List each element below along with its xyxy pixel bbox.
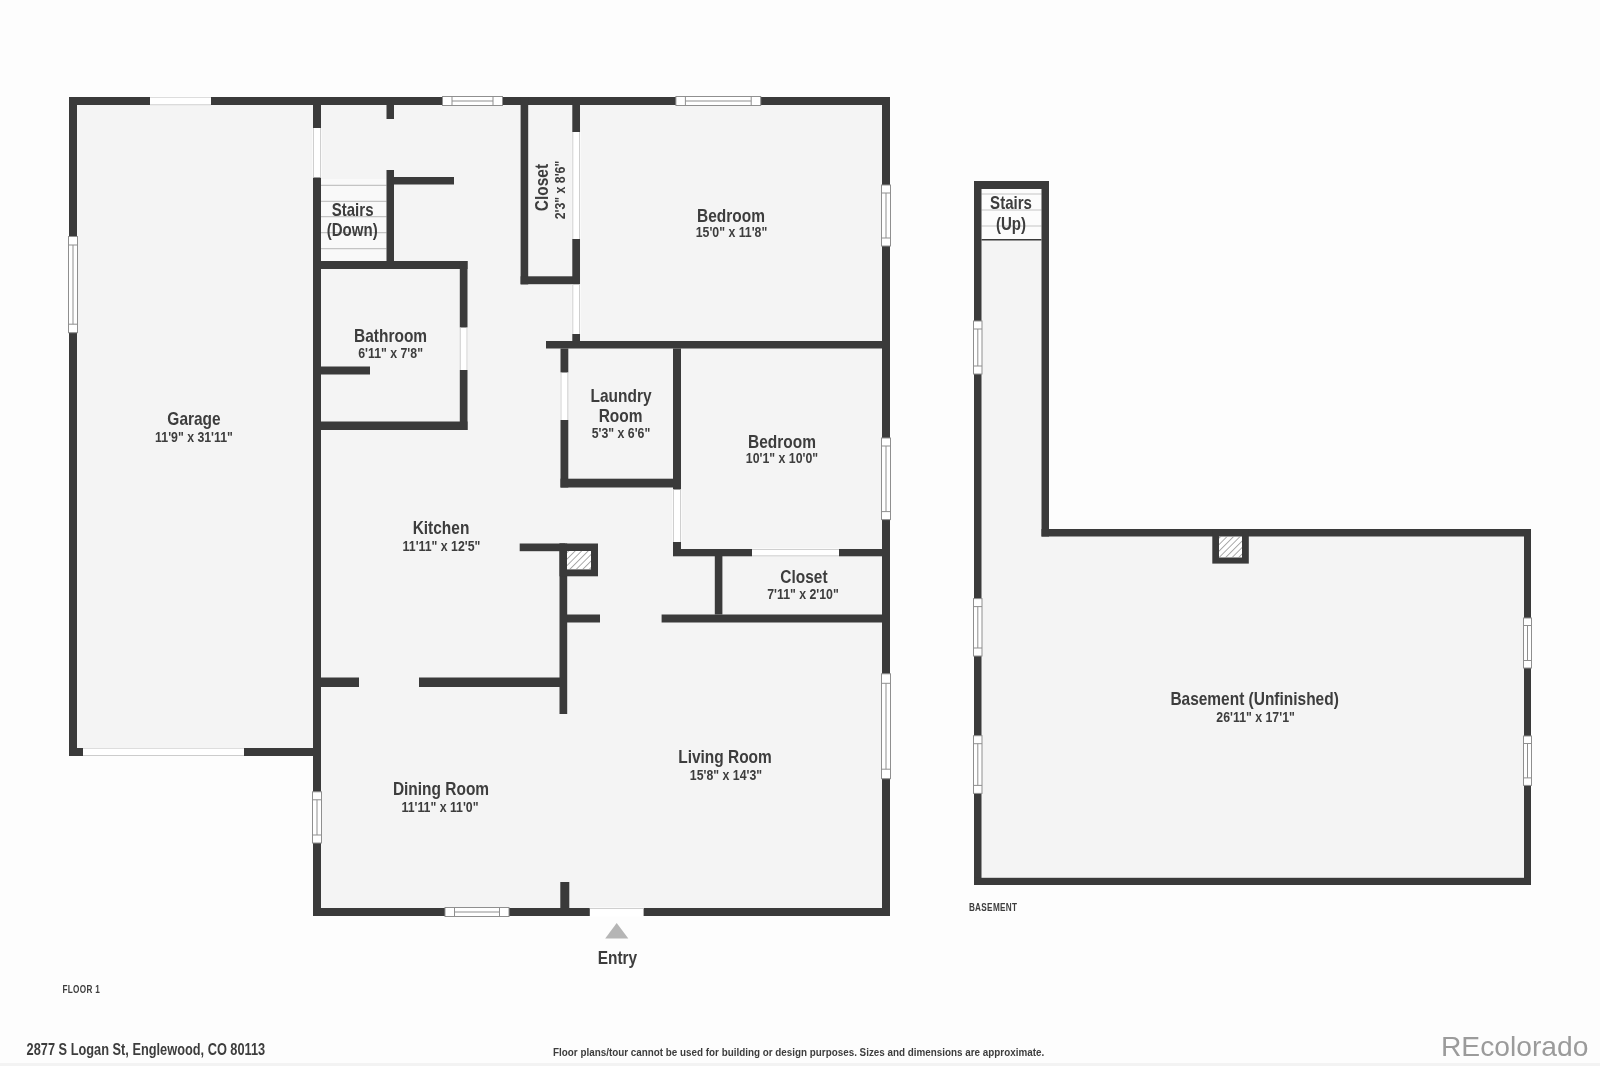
svg-text:Kitchen: Kitchen [413,517,470,537]
svg-text:Closet: Closet [780,567,828,587]
svg-text:15'0" x 11'8": 15'0" x 11'8" [696,224,768,240]
svg-text:Entry: Entry [598,948,638,968]
svg-text:Bedroom: Bedroom [697,205,765,225]
svg-text:Bathroom: Bathroom [354,325,427,345]
svg-text:11'9" x 31'11": 11'9" x 31'11" [155,429,233,445]
svg-text:REcolorado: REcolorado [1441,1029,1588,1061]
svg-text:(Down): (Down) [327,220,378,239]
svg-text:Garage: Garage [167,408,220,428]
svg-text:(Up): (Up) [996,214,1026,233]
svg-text:Floor plans/tour cannot be use: Floor plans/tour cannot be used for buil… [553,1047,1044,1058]
svg-text:Laundry: Laundry [591,386,653,406]
svg-text:2877 S Logan St, Englewood, CO: 2877 S Logan St, Englewood, CO 80113 [27,1040,266,1058]
svg-text:Bedroom: Bedroom [748,431,816,451]
svg-text:Closet: Closet [531,163,551,211]
svg-text:Dining Room: Dining Room [393,778,489,798]
svg-text:5'3" x 6'6": 5'3" x 6'6" [592,425,651,441]
svg-text:7'11" x 2'10": 7'11" x 2'10" [767,586,839,602]
svg-text:Basement (Unfinished): Basement (Unfinished) [1170,689,1338,709]
svg-text:Living Room: Living Room [678,747,772,767]
svg-text:2'3" x 8'6": 2'3" x 8'6" [552,161,568,220]
svg-text:11'11" x 12'5": 11'11" x 12'5" [403,538,481,554]
svg-text:Stairs: Stairs [332,200,374,219]
svg-text:Stairs: Stairs [990,193,1032,212]
svg-text:11'11" x 11'0": 11'11" x 11'0" [401,799,478,815]
svg-text:6'11" x 7'8": 6'11" x 7'8" [358,345,423,361]
svg-text:FLOOR 1: FLOOR 1 [63,983,101,995]
svg-text:15'8" x 14'3": 15'8" x 14'3" [690,767,762,783]
svg-text:26'11" x 17'1": 26'11" x 17'1" [1216,709,1294,725]
svg-text:Room: Room [599,405,643,425]
svg-text:10'1" x 10'0": 10'1" x 10'0" [746,450,818,466]
svg-text:BASEMENT: BASEMENT [969,901,1017,913]
